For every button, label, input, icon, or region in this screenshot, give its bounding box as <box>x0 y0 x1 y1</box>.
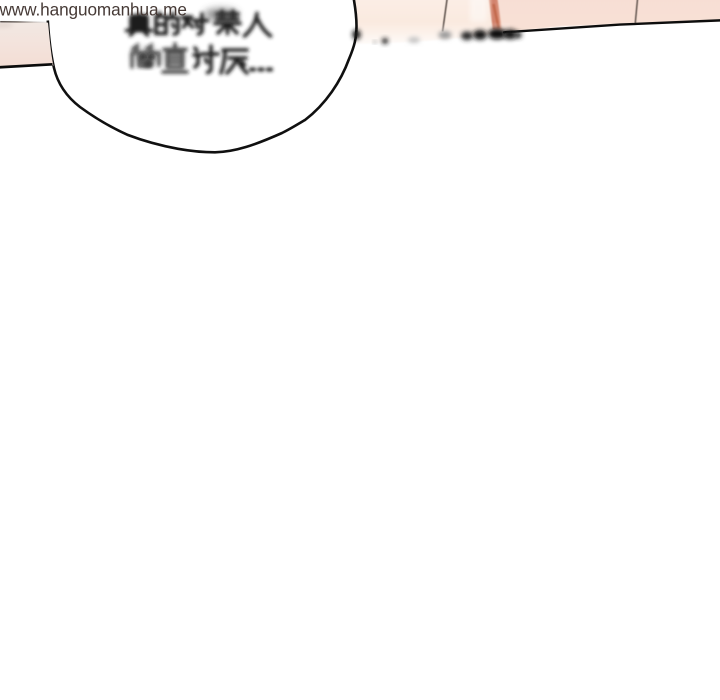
svg-text:www.hanguomanhua.me: www.hanguomanhua.me <box>0 0 187 19</box>
